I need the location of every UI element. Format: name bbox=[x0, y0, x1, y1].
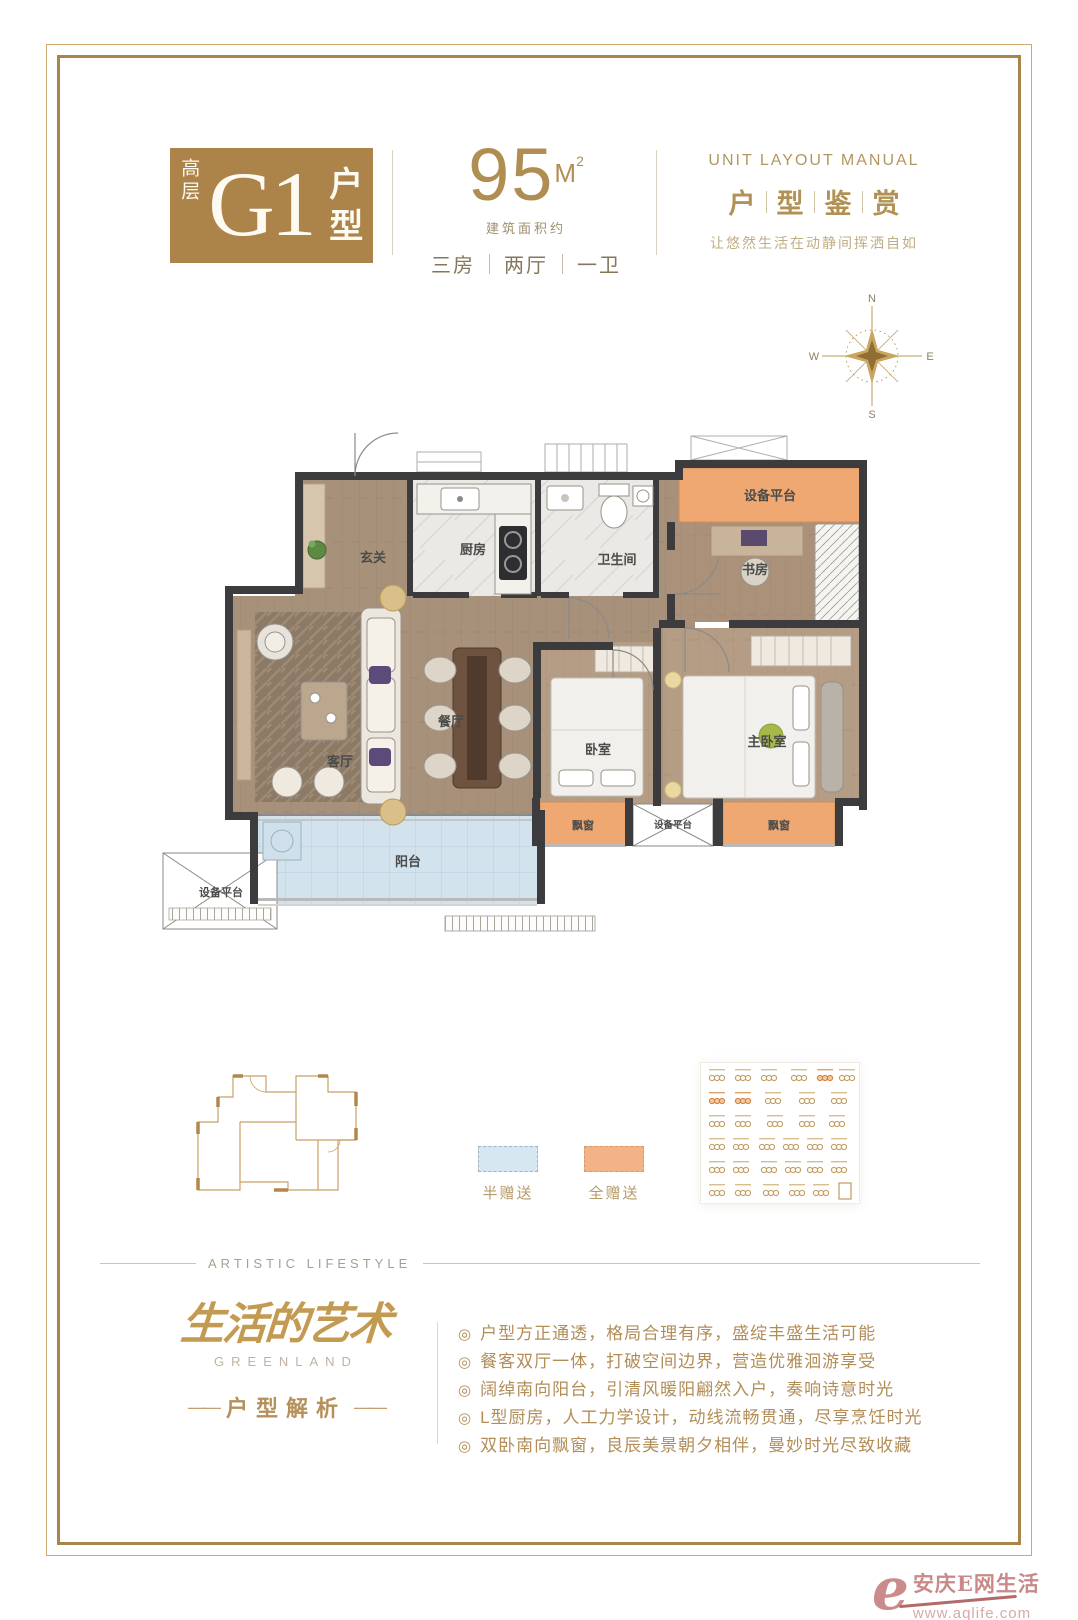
bullet-icon: ◎ bbox=[458, 1410, 472, 1427]
manual-tagline: 让悠然生活在动静间挥洒自如 bbox=[698, 233, 930, 253]
brand-block: 生活的艺术 GREENLAND —— 户型解析 —— bbox=[168, 1288, 404, 1423]
half-gift-swatch bbox=[478, 1146, 538, 1172]
feature-item: ◎L型厨房，人工力学设计，动线流畅贯通，尽享烹饪时光 bbox=[458, 1404, 958, 1432]
badge-code: G1 bbox=[208, 158, 312, 250]
watermark-name: 安庆E网生活 bbox=[913, 1568, 1040, 1598]
dash-left: —— bbox=[188, 1397, 218, 1418]
half-gift-label: 半赠送 bbox=[478, 1182, 538, 1203]
label-living: 客厅 bbox=[327, 754, 353, 769]
bullet-icon: ◎ bbox=[458, 1326, 472, 1343]
section-divider: ARTISTIC LIFESTYLE bbox=[100, 1256, 980, 1271]
badge-tier: 高层 bbox=[175, 158, 202, 204]
divider-line-right bbox=[423, 1263, 980, 1264]
feature-item: ◎餐客双厅一体，打破空间边界，营造优雅洄游享受 bbox=[458, 1348, 958, 1376]
brand-en: GREENLAND bbox=[168, 1354, 404, 1369]
feature-item: ◎双卧南向飘窗，良辰美景朝夕相伴，曼妙时光尽致收藏 bbox=[458, 1432, 958, 1460]
label-bay-1: 飘窗 bbox=[572, 818, 594, 832]
site-key-map bbox=[700, 1062, 860, 1204]
watermark-e-logo: e bbox=[872, 1560, 909, 1618]
spec-separator bbox=[562, 254, 563, 274]
label-bath: 卫生间 bbox=[597, 552, 636, 567]
spec-halls: 两厅 bbox=[504, 249, 548, 278]
area-approx: 建筑面积约 bbox=[408, 218, 644, 237]
bullet-icon: ◎ bbox=[458, 1382, 472, 1399]
label-master: 主卧室 bbox=[747, 734, 786, 749]
full-gift-swatch bbox=[584, 1146, 644, 1172]
feature-list: ◎户型方正通透，格局合理有序，盛绽丰盛生活可能 ◎餐客双厅一体，打破空间边界，营… bbox=[458, 1320, 958, 1460]
spec-separator bbox=[489, 254, 490, 274]
analysis-title: —— 户型解析 —— bbox=[168, 1391, 404, 1423]
label-equip-bl: 设备平台 bbox=[199, 885, 243, 899]
brand-calligraphy: 生活的艺术 bbox=[166, 1288, 406, 1352]
area-block: 95M2 建筑面积约 三房 两厅 一卫 bbox=[408, 138, 644, 278]
manual-title-en: UNIT LAYOUT MANUAL bbox=[698, 152, 930, 170]
feature-item: ◎阔绰南向阳台，引清风暖阳翩然入户，奏响诗意时光 bbox=[458, 1376, 958, 1404]
floorplan: 玄关 厨房 卫生间 书房 设备平台 餐厅 客厅 卧室 主卧室 飘窗 设备平台 飘… bbox=[155, 430, 875, 935]
divider-line-left bbox=[100, 1263, 196, 1264]
label-equip-top: 设备平台 bbox=[744, 488, 796, 503]
label-study: 书房 bbox=[742, 562, 768, 577]
header-divider-left bbox=[392, 150, 393, 255]
compass-e: E bbox=[926, 351, 933, 363]
compass-w: W bbox=[809, 351, 820, 363]
features-divider bbox=[437, 1322, 438, 1444]
label-bay-2: 飘窗 bbox=[768, 818, 790, 832]
badge-suffix: 户型 bbox=[319, 166, 368, 250]
feature-item: ◎户型方正通透，格局合理有序，盛绽丰盛生活可能 bbox=[458, 1320, 958, 1348]
full-gift-label: 全赠送 bbox=[584, 1182, 644, 1203]
legend-full: 全赠送 bbox=[584, 1146, 644, 1203]
compass-s: S bbox=[868, 409, 875, 421]
compass-n: N bbox=[868, 293, 876, 305]
label-balcony: 阳台 bbox=[395, 854, 421, 869]
gift-legend: 半赠送 全赠送 bbox=[478, 1146, 644, 1203]
mini-floorplan bbox=[178, 1052, 378, 1200]
area-value: 95M2 bbox=[408, 138, 644, 212]
label-equip-mid: 设备平台 bbox=[654, 819, 693, 831]
label-kitchen: 厨房 bbox=[460, 542, 486, 557]
label-dining: 餐厅 bbox=[437, 714, 464, 729]
compass-icon: N S W E bbox=[806, 290, 938, 422]
watermark-url: www.aqlife.com bbox=[913, 1605, 1031, 1620]
dash-right: —— bbox=[354, 1397, 384, 1418]
site-watermark: e 安庆E网生活 www.aqlife.com bbox=[872, 1560, 1040, 1620]
label-bedroom: 卧室 bbox=[585, 742, 611, 757]
bullet-icon: ◎ bbox=[458, 1438, 472, 1455]
manual-title-cn: 户 型 鉴 赏 bbox=[698, 182, 930, 221]
spec-rooms: 三房 bbox=[431, 249, 475, 278]
manual-block: UNIT LAYOUT MANUAL 户 型 鉴 赏 让悠然生活在动静间挥洒自如 bbox=[698, 152, 930, 253]
unit-badge: 高层 G1 户型 bbox=[170, 148, 373, 263]
legend-half: 半赠送 bbox=[478, 1146, 538, 1203]
label-entry: 玄关 bbox=[360, 550, 386, 565]
header-divider-right bbox=[656, 150, 657, 255]
divider-label: ARTISTIC LIFESTYLE bbox=[208, 1256, 411, 1271]
spec-baths: 一卫 bbox=[577, 249, 621, 278]
unit-layout-poster: 高层 G1 户型 95M2 建筑面积约 三房 两厅 一卫 UNIT LAYOUT… bbox=[0, 0, 1078, 1620]
room-specs: 三房 两厅 一卫 bbox=[408, 249, 644, 278]
bullet-icon: ◎ bbox=[458, 1354, 472, 1371]
